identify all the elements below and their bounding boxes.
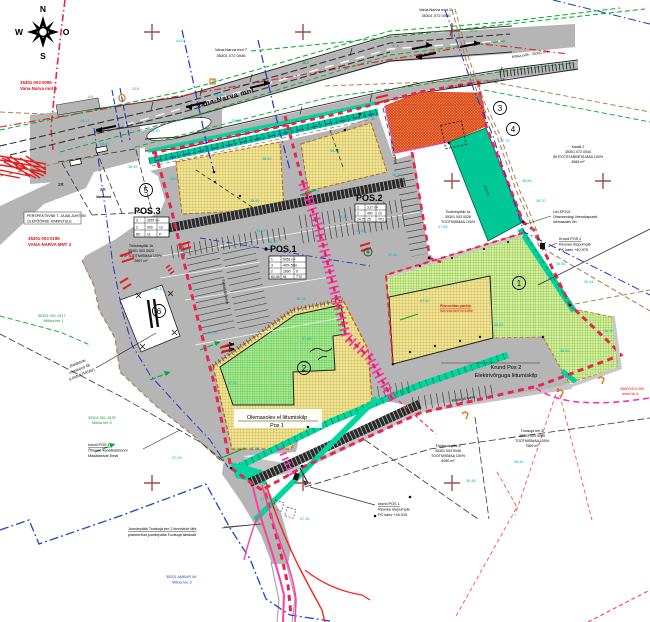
svg-text:35201 AMBUR 4K: 35201 AMBUR 4K xyxy=(166,575,197,579)
svg-text:2R: 2R xyxy=(58,182,65,187)
svg-text:37.2: 37.2 xyxy=(470,29,477,33)
svg-text:POS.1: POS.1 xyxy=(270,244,297,254)
svg-text:38.02: 38.02 xyxy=(296,297,306,301)
svg-text:Madalseade Eesti: Madalseade Eesti xyxy=(88,454,118,458)
svg-text:35301 001 1517: 35301 001 1517 xyxy=(38,314,65,318)
svg-text:Mõisa tee 3: Mõisa tee 3 xyxy=(92,421,112,425)
svg-text:Reovee ülepumpla: Reovee ülepumpla xyxy=(378,508,411,512)
svg-text:POS.2: POS.2 xyxy=(356,193,383,203)
svg-text:Liin EP102: Liin EP102 xyxy=(553,210,570,214)
svg-text:37.66: 37.66 xyxy=(438,225,448,229)
svg-text:TP1: TP1 xyxy=(378,218,384,222)
svg-text:Vana-Narva mnt 11: Vana-Narva mnt 11 xyxy=(419,7,454,12)
svg-text:PK kaev +40.975: PK kaev +40.975 xyxy=(559,248,588,252)
svg-text:38.17: 38.17 xyxy=(80,119,90,123)
svg-text:ÜLEPÕÕRDE KINNISTULE: ÜLEPÕÕRDE KINNISTULE xyxy=(27,219,72,224)
svg-text:6: 6 xyxy=(157,307,162,316)
svg-text:2R: 2R xyxy=(100,187,107,192)
svg-text:35301 072 0050: 35301 072 0050 xyxy=(422,13,452,18)
svg-text:3,2 t m²: 3,2 t m² xyxy=(367,206,379,210)
svg-text:900: 900 xyxy=(147,226,153,230)
svg-text:38.06: 38.06 xyxy=(208,331,218,335)
svg-text:POS.3: POS.3 xyxy=(134,206,161,216)
svg-text:36.58: 36.58 xyxy=(556,262,566,266)
svg-text:38.28: 38.28 xyxy=(232,119,242,123)
svg-text:36.70: 36.70 xyxy=(536,199,546,203)
svg-text:38.40: 38.40 xyxy=(250,199,260,203)
svg-text:1: 1 xyxy=(271,258,273,262)
svg-text:Pos 1: Pos 1 xyxy=(270,423,284,429)
svg-text:1600: 1600 xyxy=(283,270,291,274)
svg-text:2: 2 xyxy=(357,206,359,210)
svg-text:37.18: 37.18 xyxy=(300,517,310,521)
svg-text:35301 003 0195: 35301 003 0195 xyxy=(28,236,60,241)
svg-text:10: 10 xyxy=(378,212,382,216)
svg-text:Õhevee-kanalisatsiooni: Õhevee-kanalisatsiooni xyxy=(88,448,128,453)
svg-text:S: S xyxy=(40,51,46,61)
svg-text:35301 072 0046: 35301 072 0046 xyxy=(217,53,247,58)
svg-text:38.22: 38.22 xyxy=(256,229,266,233)
svg-text:3097 m²: 3097 m² xyxy=(147,219,160,223)
svg-text:3.5: 3.5 xyxy=(238,137,243,141)
svg-text:Elektrivõrguga liitumiskilp: Elektrivõrguga liitumiskilp xyxy=(475,373,538,379)
svg-text:4: 4 xyxy=(511,125,516,134)
svg-text:olemasolev liin: olemasolev liin xyxy=(553,220,577,224)
svg-text:6.0: 6.0 xyxy=(212,79,217,83)
svg-text:37.6: 37.6 xyxy=(392,44,399,48)
svg-text:Tööstuspõik 1b: Tööstuspõik 1b xyxy=(129,244,153,248)
svg-text:35301 072 0044: 35301 072 0044 xyxy=(565,150,591,154)
svg-text:1: 1 xyxy=(517,279,522,288)
svg-text:37.96: 37.96 xyxy=(356,229,366,233)
svg-text:N: N xyxy=(40,4,46,14)
svg-text:Kastik 2: Kastik 2 xyxy=(572,145,585,149)
svg-text:38.08: 38.08 xyxy=(268,240,278,244)
svg-text:Tööstuse põik 5: Tööstuse põik 5 xyxy=(435,444,460,448)
svg-text:TOOTMISMAA 100%: TOOTMISMAA 100% xyxy=(441,220,476,224)
svg-text:37.06: 37.06 xyxy=(250,447,260,451)
svg-text:38.35: 38.35 xyxy=(330,149,340,153)
svg-text:25: 25 xyxy=(367,218,371,222)
svg-text:400: 400 xyxy=(367,212,373,216)
svg-text:35301 003 0095: 35301 003 0095 xyxy=(20,80,52,85)
svg-text:PC kaev +40.915: PC kaev +40.915 xyxy=(378,513,407,517)
svg-text:36.46: 36.46 xyxy=(514,460,524,464)
svg-text:24,75: 24,75 xyxy=(357,218,365,222)
svg-text:38.09: 38.09 xyxy=(100,142,110,146)
svg-text:Olemasolev el liitumiskilp: Olemasolev el liitumiskilp xyxy=(247,415,307,421)
svg-text:38.22: 38.22 xyxy=(310,189,320,193)
svg-text:2: 2 xyxy=(271,270,273,274)
svg-text:36.44: 36.44 xyxy=(584,280,594,284)
svg-text:planeeritud juurdepääs Tootsoj: planeeritud juurdepääs Tootsoja tänavalt xyxy=(128,533,197,537)
svg-text:krund POS 1: krund POS 1 xyxy=(88,443,110,447)
svg-text:Ühisveevärgi ühenduspunkt: Ühisveevärgi ühenduspunkt xyxy=(553,215,597,219)
svg-text:7569 m²: 7569 m² xyxy=(525,444,539,448)
svg-text:4.0: 4.0 xyxy=(88,95,93,99)
svg-text:PERSPEKTIIVNE T. JA AB-JUHTON: PERSPEKTIIVNE T. JA AB-JUHTON xyxy=(27,214,86,218)
svg-text:35301 001 1575: 35301 001 1575 xyxy=(88,416,115,420)
svg-text:4050 m²: 4050 m² xyxy=(441,459,455,463)
svg-text:TOOTMISMAA 100%: TOOTMISMAA 100% xyxy=(431,454,466,458)
svg-text:38.40: 38.40 xyxy=(150,129,160,133)
svg-text:37.76: 37.76 xyxy=(500,139,510,143)
svg-text:Reovee ülepumpla: Reovee ülepumpla xyxy=(559,243,592,247)
svg-text:12.5: 12.5 xyxy=(132,87,139,91)
svg-text:36.80: 36.80 xyxy=(330,441,340,445)
svg-text:38.60: 38.60 xyxy=(170,177,180,181)
svg-text:37.40: 37.40 xyxy=(420,299,430,303)
svg-text:2: 2 xyxy=(357,212,359,216)
svg-text:37.92: 37.92 xyxy=(228,381,238,385)
svg-text:35301 003 0095: 35301 003 0095 xyxy=(519,434,545,438)
svg-text:3: 3 xyxy=(136,219,138,223)
svg-text:2667 m²: 2667 m² xyxy=(134,259,148,263)
svg-text:amet kk 6: amet kk 6 xyxy=(622,392,638,396)
svg-text:51: 51 xyxy=(283,275,287,279)
svg-text:38.50: 38.50 xyxy=(262,157,272,161)
svg-text:O: O xyxy=(63,27,70,37)
svg-text:12: 12 xyxy=(159,226,163,230)
svg-text:35301 003 0046: 35301 003 0046 xyxy=(435,449,461,453)
svg-text:Krund Pos 2: Krund Pos 2 xyxy=(491,365,522,371)
svg-text:Vana-Narva mnt 7: Vana-Narva mnt 7 xyxy=(215,47,248,52)
svg-text:38.30: 38.30 xyxy=(338,215,348,219)
svg-text:3: 3 xyxy=(498,104,503,113)
svg-text:37.88: 37.88 xyxy=(302,337,312,341)
svg-text:37.87: 37.87 xyxy=(458,165,468,169)
svg-text:38.46: 38.46 xyxy=(214,93,224,97)
svg-text:2.0: 2.0 xyxy=(348,115,353,119)
svg-text:37.58: 37.58 xyxy=(388,253,398,257)
svg-text:Tootmisplõki 1a: Tootmisplõki 1a xyxy=(446,210,471,214)
svg-text:W: W xyxy=(15,27,24,37)
svg-text:SIHTOTSTARBETA MAA 100%: SIHTOTSTARBETA MAA 100% xyxy=(553,155,604,159)
svg-text:Krund POS 2: Krund POS 2 xyxy=(559,237,581,241)
svg-text:37.30: 37.30 xyxy=(260,497,270,501)
svg-text:60: 60 xyxy=(136,233,140,237)
svg-text:37.28: 37.28 xyxy=(172,456,182,460)
svg-text:60,45: 60,45 xyxy=(271,275,280,279)
svg-text:38.2: 38.2 xyxy=(302,61,309,65)
svg-text:laiendamine krundile: laiendamine krundile xyxy=(440,309,473,313)
svg-text:Juurdepääs Tootsoja tee 2 kinn: Juurdepääs Tootsoja tee 2 kinnistule läb… xyxy=(128,527,196,531)
svg-text:TOOTMISMAA 100%: TOOTMISMAA 100% xyxy=(515,439,550,443)
svg-text:36.30: 36.30 xyxy=(604,329,614,333)
svg-text:40% 50m: 40% 50m xyxy=(283,264,297,268)
svg-text:38.40: 38.40 xyxy=(154,287,164,291)
svg-text:TT2: TT2 xyxy=(296,275,302,279)
svg-text:Varemed: Varemed xyxy=(96,195,111,199)
svg-text:krund POS 1: krund POS 1 xyxy=(378,502,400,506)
svg-text:3: 3 xyxy=(271,264,273,268)
svg-text:Vana-Narva mnt 9: Vana-Narva mnt 9 xyxy=(20,86,57,91)
svg-text:38.10: 38.10 xyxy=(392,173,402,177)
svg-text:3580/VE3.000: 3580/VE3.000 xyxy=(620,387,644,391)
svg-text:2: 2 xyxy=(302,364,307,373)
svg-text:Tootsoja tee 3: Tootsoja tee 3 xyxy=(521,429,543,433)
svg-text:35301 003 0026: 35301 003 0026 xyxy=(445,215,471,219)
svg-text:36.92: 36.92 xyxy=(494,323,504,327)
svg-text:4584 m²: 4584 m² xyxy=(571,160,585,164)
svg-text:Planeeritav parkla: Planeeritav parkla xyxy=(440,304,472,308)
svg-text:37.80: 37.80 xyxy=(414,209,424,213)
svg-text:36.38: 36.38 xyxy=(466,479,476,483)
svg-text:2: 2 xyxy=(136,226,138,230)
svg-text:VANA-NARVA MNT 4: VANA-NARVA MNT 4 xyxy=(28,242,72,247)
svg-text:Mõisa tee 1: Mõisa tee 1 xyxy=(44,319,64,323)
svg-text:36.60: 36.60 xyxy=(560,349,570,353)
svg-text:5: 5 xyxy=(144,186,149,195)
svg-text:5051 m²: 5051 m² xyxy=(283,258,296,262)
svg-text:38.55: 38.55 xyxy=(128,165,138,169)
svg-text:9: 9 xyxy=(296,270,298,274)
svg-text:11: 11 xyxy=(147,233,151,237)
svg-text:44.67: 44.67 xyxy=(176,39,186,43)
svg-text:Mõisa tee 3: Mõisa tee 3 xyxy=(172,581,192,585)
svg-text:37.70: 37.70 xyxy=(474,95,484,99)
svg-text:36.88: 36.88 xyxy=(522,179,532,183)
